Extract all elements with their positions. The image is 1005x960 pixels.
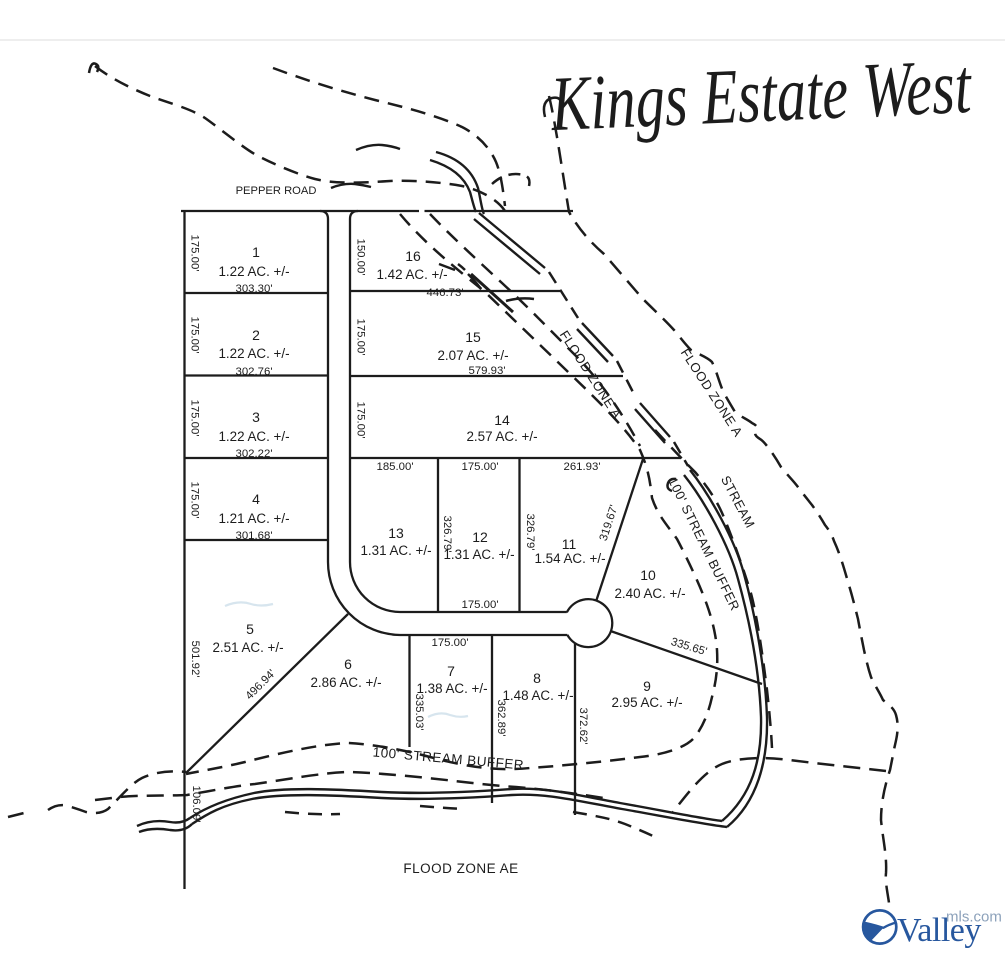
svg-text:14: 14 bbox=[494, 412, 510, 428]
svg-text:mls.com: mls.com bbox=[946, 909, 1002, 926]
svg-text:7: 7 bbox=[447, 663, 455, 679]
svg-text:10: 10 bbox=[640, 567, 656, 583]
svg-text:2: 2 bbox=[252, 327, 260, 343]
svg-text:1.21 AC. +/-: 1.21 AC. +/- bbox=[218, 511, 289, 526]
svg-text:1.48 AC. +/-: 1.48 AC. +/- bbox=[502, 688, 573, 703]
svg-text:335.03': 335.03' bbox=[413, 693, 425, 730]
svg-text:175.00': 175.00' bbox=[189, 234, 201, 271]
svg-text:1.22 AC. +/-: 1.22 AC. +/- bbox=[218, 346, 289, 361]
svg-text:1.54 AC. +/-: 1.54 AC. +/- bbox=[534, 551, 605, 566]
svg-text:326.79': 326.79' bbox=[524, 513, 536, 550]
svg-text:16: 16 bbox=[405, 248, 421, 264]
svg-text:185.00': 185.00' bbox=[376, 461, 413, 473]
svg-text:PEPPER ROAD: PEPPER ROAD bbox=[236, 185, 317, 197]
svg-text:326.79': 326.79' bbox=[441, 515, 453, 552]
svg-text:362.89': 362.89' bbox=[495, 699, 507, 736]
svg-text:1.31 AC. +/-: 1.31 AC. +/- bbox=[360, 543, 431, 558]
svg-text:2.95 AC. +/-: 2.95 AC. +/- bbox=[611, 695, 682, 710]
svg-text:1: 1 bbox=[252, 244, 260, 260]
svg-text:302.76': 302.76' bbox=[235, 366, 272, 378]
svg-text:2.07 AC. +/-: 2.07 AC. +/- bbox=[437, 348, 508, 363]
svg-text:Kings Estate West: Kings Estate West bbox=[548, 42, 974, 147]
svg-text:301.68': 301.68' bbox=[235, 530, 272, 542]
svg-text:175.00': 175.00' bbox=[431, 637, 468, 649]
svg-text:2.40 AC. +/-: 2.40 AC. +/- bbox=[614, 586, 685, 601]
svg-text:9: 9 bbox=[643, 678, 651, 694]
svg-text:4: 4 bbox=[252, 491, 260, 507]
svg-text:6: 6 bbox=[344, 656, 352, 672]
svg-text:8: 8 bbox=[533, 670, 541, 686]
svg-text:501.92': 501.92' bbox=[189, 640, 201, 677]
svg-text:175.00': 175.00' bbox=[355, 318, 367, 355]
svg-text:579.93': 579.93' bbox=[468, 365, 505, 377]
svg-text:175.00': 175.00' bbox=[355, 401, 367, 438]
svg-text:106.09': 106.09' bbox=[190, 785, 202, 822]
svg-text:1.31 AC. +/-: 1.31 AC. +/- bbox=[443, 547, 514, 562]
svg-text:3: 3 bbox=[252, 409, 260, 425]
svg-text:1.38 AC. +/-: 1.38 AC. +/- bbox=[416, 681, 487, 696]
svg-text:12: 12 bbox=[472, 529, 488, 545]
svg-text:2.51 AC. +/-: 2.51 AC. +/- bbox=[212, 640, 283, 655]
svg-text:2.57 AC. +/-: 2.57 AC. +/- bbox=[466, 429, 537, 444]
svg-text:175.00': 175.00' bbox=[189, 399, 201, 436]
svg-text:372.62': 372.62' bbox=[577, 707, 589, 744]
svg-text:446.73': 446.73' bbox=[426, 287, 463, 299]
svg-text:175.00': 175.00' bbox=[189, 481, 201, 518]
svg-text:175.00': 175.00' bbox=[461, 599, 498, 611]
svg-text:2.86 AC. +/-: 2.86 AC. +/- bbox=[310, 675, 381, 690]
svg-text:15: 15 bbox=[465, 329, 481, 345]
svg-text:150.00': 150.00' bbox=[355, 238, 367, 275]
svg-text:175.00': 175.00' bbox=[461, 461, 498, 473]
svg-text:11: 11 bbox=[562, 536, 577, 552]
svg-text:13: 13 bbox=[388, 525, 404, 541]
svg-text:1.22 AC. +/-: 1.22 AC. +/- bbox=[218, 429, 289, 444]
svg-text:261.93': 261.93' bbox=[563, 461, 600, 473]
svg-text:5: 5 bbox=[246, 621, 254, 637]
svg-text:FLOOD ZONE AE: FLOOD ZONE AE bbox=[403, 861, 518, 876]
svg-text:303.30': 303.30' bbox=[235, 283, 272, 295]
svg-text:1.42 AC. +/-: 1.42 AC. +/- bbox=[376, 267, 447, 282]
svg-text:1.22 AC. +/-: 1.22 AC. +/- bbox=[218, 264, 289, 279]
svg-text:302.22': 302.22' bbox=[235, 448, 272, 460]
svg-text:175.00': 175.00' bbox=[189, 316, 201, 353]
